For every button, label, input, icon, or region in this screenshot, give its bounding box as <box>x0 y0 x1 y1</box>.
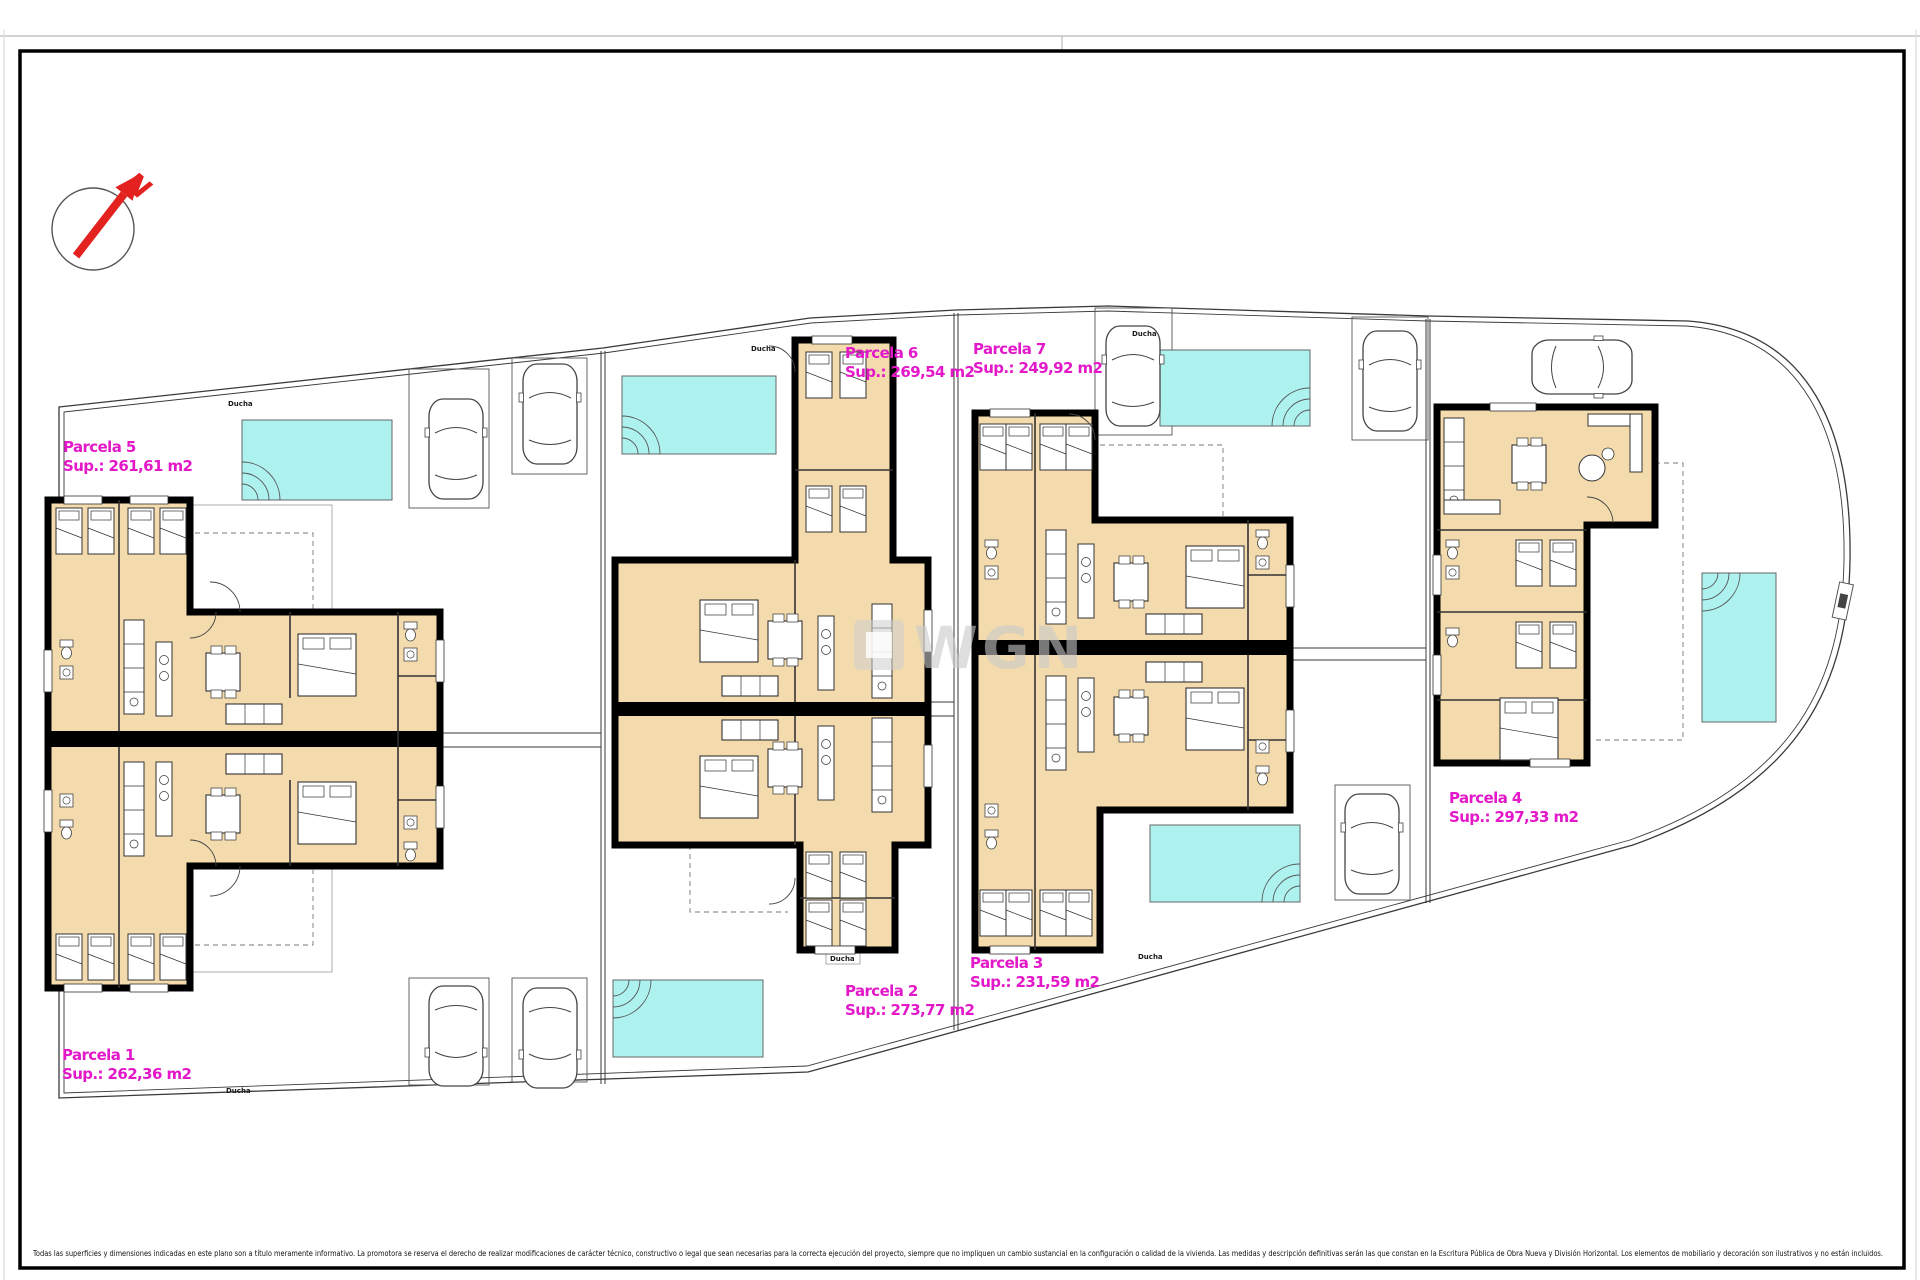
party-wall <box>615 702 928 716</box>
parcel-label: Parcela 2 Sup.: 273,77 m2 <box>845 982 974 1019</box>
parcel-label: Parcela 5 Sup.: 261,61 m2 <box>63 438 192 475</box>
parcel-label: Parcela 4 Sup.: 297,33 m2 <box>1449 789 1578 826</box>
svg-text:Sup.: 249,92 m2: Sup.: 249,92 m2 <box>973 359 1102 377</box>
ducha-label: Ducha <box>751 345 776 353</box>
svg-text:Sup.: 261,61 m2: Sup.: 261,61 m2 <box>63 457 192 475</box>
ducha-label: Ducha <box>1132 330 1157 338</box>
svg-text:Sup.: 269,54 m2: Sup.: 269,54 m2 <box>845 363 974 381</box>
svg-text:Parcela 5: Parcela 5 <box>63 438 136 456</box>
party-wall <box>48 731 440 747</box>
pool <box>1160 350 1310 426</box>
building-villa-4 <box>1437 407 1655 763</box>
ducha-label: Ducha <box>830 955 855 963</box>
parcel-label: Parcela 7 Sup.: 249,92 m2 <box>973 340 1102 377</box>
pool <box>242 420 392 500</box>
pool <box>1702 573 1776 722</box>
parcel-label: Parcela 6 Sup.: 269,54 m2 <box>845 344 974 381</box>
svg-text:Parcela 1: Parcela 1 <box>62 1046 135 1064</box>
svg-text:Parcela 4: Parcela 4 <box>1449 789 1522 807</box>
car-icon <box>519 364 581 464</box>
svg-text:Sup.: 262,36 m2: Sup.: 262,36 m2 <box>62 1065 191 1083</box>
ducha-label: Ducha <box>228 400 253 408</box>
car-icon <box>519 988 581 1088</box>
plan-sheet: N <box>0 0 1920 1280</box>
car-icon <box>425 986 487 1086</box>
svg-text:Parcela 7: Parcela 7 <box>973 340 1046 358</box>
pool <box>613 980 763 1057</box>
watermark-text: WGN <box>914 614 1086 682</box>
boundary-marker <box>1832 582 1853 620</box>
car-icon <box>1341 794 1403 894</box>
pool <box>622 376 776 454</box>
site-plan-svg: N <box>0 0 1920 1280</box>
disclaimer-text: Todas las superficies y dimensiones indi… <box>32 1248 1883 1258</box>
ducha-label: Ducha <box>226 1087 251 1095</box>
ducha-label: Ducha <box>1138 953 1163 961</box>
svg-text:Sup.: 231,59 m2: Sup.: 231,59 m2 <box>970 973 1099 991</box>
car-icon <box>425 399 487 499</box>
pool <box>1150 825 1300 902</box>
parcel-label: Parcela 3 Sup.: 231,59 m2 <box>970 954 1099 991</box>
svg-text:Parcela 3: Parcela 3 <box>970 954 1043 972</box>
svg-text:Sup.: 297,33 m2: Sup.: 297,33 m2 <box>1449 808 1578 826</box>
svg-text:Sup.: 273,77 m2: Sup.: 273,77 m2 <box>845 1001 974 1019</box>
car-icon <box>1359 331 1421 431</box>
parcel-label: Parcela 1 Sup.: 262,36 m2 <box>62 1046 191 1083</box>
svg-text:Parcela 2: Parcela 2 <box>845 982 918 1000</box>
svg-text:Parcela 6: Parcela 6 <box>845 344 918 362</box>
car-icon <box>1532 336 1632 398</box>
compass: N <box>52 166 157 270</box>
car-icon <box>1102 326 1164 426</box>
